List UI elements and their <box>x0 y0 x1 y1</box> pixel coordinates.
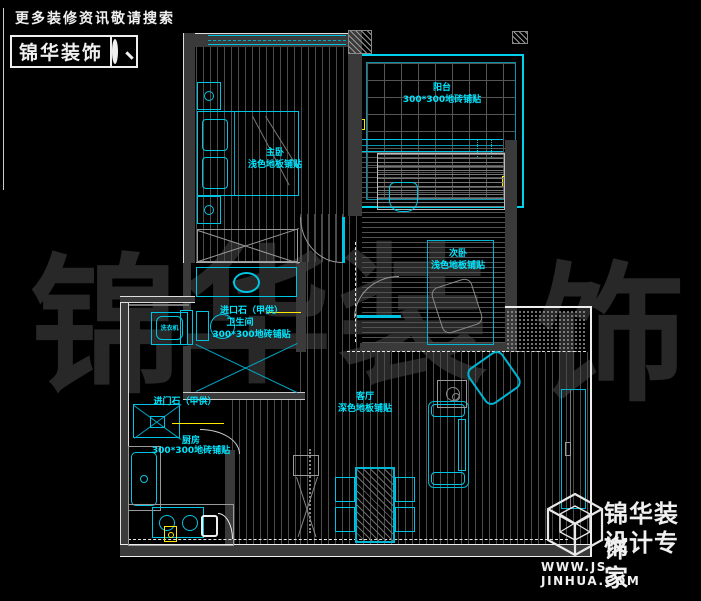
lamp-icon <box>204 91 214 101</box>
living-floor-hatch-left <box>232 396 300 544</box>
floorplan-canvas: 锦 华 装 饰 <box>0 0 701 601</box>
dotted-strip <box>309 449 313 533</box>
header-brand: 锦华装饰 <box>12 38 110 65</box>
dining-chair <box>395 477 415 502</box>
header-logo-box: 锦华装饰 <box>10 35 138 68</box>
master-window-dash <box>208 40 346 41</box>
wall-hatch-corner <box>512 31 528 44</box>
kitchen-finish: 300*300地砖铺贴 <box>148 445 234 457</box>
entry-door <box>201 515 218 537</box>
sofa-armrest <box>431 472 465 485</box>
tv-stand-top <box>293 455 319 476</box>
wall-cabinet <box>561 389 586 509</box>
armchair-seat <box>464 348 524 408</box>
dining-table <box>355 467 395 543</box>
room-name: 阳台 <box>368 82 516 94</box>
balcony-label: 阳台 300*300地砖铺贴 <box>368 82 516 106</box>
wall-laundry-top <box>120 296 195 303</box>
door-opening-dash <box>355 242 356 342</box>
wall-master-left <box>183 33 195 263</box>
bathroom-name: 卫生间 <box>204 317 276 329</box>
door-leaf <box>357 315 401 318</box>
wall-bay-top <box>505 306 592 308</box>
armchair <box>466 349 524 407</box>
room-name: 客厅 <box>324 391 406 403</box>
plant-icon <box>452 393 460 401</box>
entry-stone-note: 进门石（甲供） <box>144 396 226 408</box>
washing-machine: 洗衣机 <box>151 312 188 345</box>
room-finish: 浅色地板铺贴 <box>408 260 508 272</box>
wardrobe-cross <box>198 228 299 262</box>
wardrobe <box>197 229 298 262</box>
desk-chair <box>389 182 418 212</box>
header-tagline: 更多装修资讯敬请搜索 <box>15 8 175 28</box>
lamp-icon <box>204 205 214 215</box>
leader-line <box>172 423 224 424</box>
shower-slope <box>196 344 297 392</box>
vanity-counter <box>196 267 297 297</box>
cube-logo-icon <box>545 492 605 558</box>
slope-line <box>196 344 298 393</box>
wall-master-bottom-line <box>196 262 300 263</box>
wardrobe-cross <box>198 230 299 264</box>
room-name: 次卧 <box>408 248 508 260</box>
gas-valve-icon <box>164 526 177 542</box>
bathroom-finish: 300*300地砖铺贴 <box>204 329 299 341</box>
faucet-icon <box>140 475 148 483</box>
footer-website: WWW.JS-JINHUA.COM <box>541 560 701 588</box>
sink-basin <box>233 272 260 293</box>
nightstand <box>197 196 221 224</box>
room-finish: 300*300地砖铺贴 <box>368 94 516 106</box>
search-icon <box>112 42 136 61</box>
bay-window-stone <box>506 310 586 352</box>
entry-stone <box>133 404 180 438</box>
image-edge-line <box>3 8 4 190</box>
bathroom-stone-note: 进口石（甲供） <box>204 305 299 317</box>
valve-dot <box>168 532 174 538</box>
dining-chair <box>335 477 355 502</box>
sofa <box>428 401 469 488</box>
wall-bath-left-lower <box>183 346 191 396</box>
dining-chair <box>395 507 415 532</box>
stove <box>152 507 204 538</box>
door-leaf <box>342 217 345 263</box>
burner-icon <box>182 515 198 531</box>
room-name: 主卧 <box>215 147 335 159</box>
cabinet-handle <box>565 442 571 456</box>
kitchen-sink <box>131 452 157 506</box>
nightstand <box>197 82 221 110</box>
washer-label: 洗衣机 <box>153 325 186 333</box>
living-room-label: 客厅 深色地板铺贴 <box>324 391 406 415</box>
side-table <box>437 380 467 408</box>
master-bedroom-label: 主卧 浅色地板铺贴 <box>215 147 335 171</box>
sofa-back <box>458 419 466 471</box>
room-finish: 深色地板铺贴 <box>324 403 406 415</box>
dining-chair <box>335 507 355 532</box>
wall-mid-column <box>348 30 362 216</box>
room-finish: 浅色地板铺贴 <box>215 159 335 171</box>
shelf-line <box>129 304 189 306</box>
floor-drain-icon <box>150 416 165 428</box>
bedroom2-label: 次卧 浅色地板铺贴 <box>408 248 508 272</box>
wall-hatch-corner <box>348 30 372 54</box>
